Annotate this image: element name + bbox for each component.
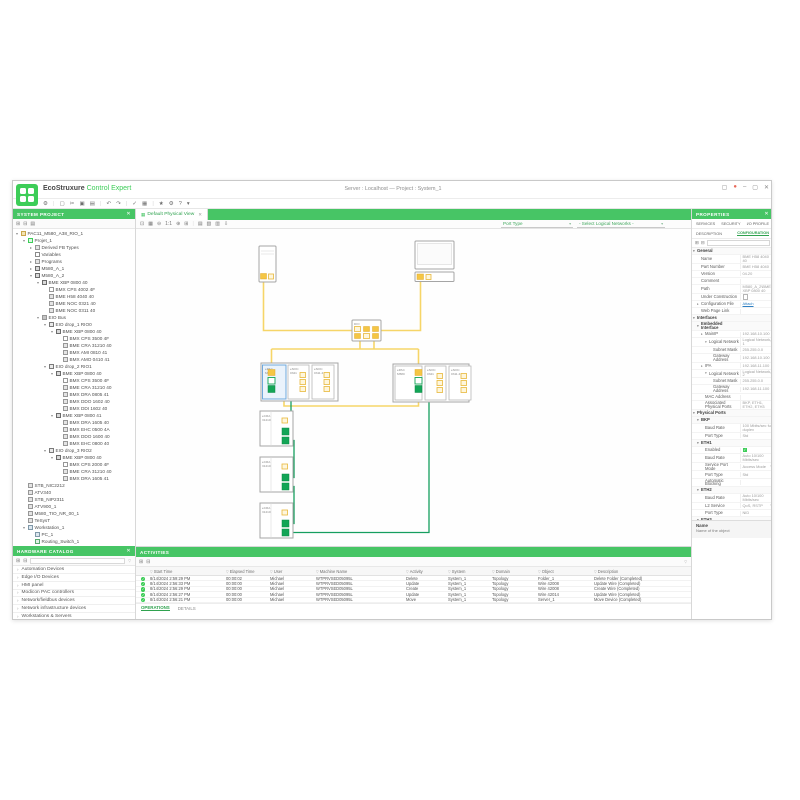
property-row[interactable]: Service Port Mode Access Mode	[692, 463, 772, 472]
col-description[interactable]: ▽Description	[592, 569, 691, 574]
close-icon[interactable]: ✕	[126, 211, 131, 217]
property-value[interactable]: BME H58 4040 40	[740, 255, 772, 263]
noc-port[interactable]	[324, 380, 330, 385]
separator[interactable]: |	[53, 199, 54, 209]
tree-item[interactable]: STB_NIP2311	[13, 496, 135, 503]
tree-item[interactable]: Variables	[13, 251, 135, 258]
property-value[interactable]: Attach	[740, 302, 772, 307]
property-label: Port Type	[705, 511, 740, 515]
catalog-category[interactable]: › Automation Devices	[13, 566, 135, 574]
tree-item-icon	[42, 315, 47, 320]
tab-security[interactable]: SECURITY	[721, 222, 740, 226]
property-value[interactable]	[740, 309, 772, 314]
noc-port[interactable]	[300, 380, 306, 385]
snapshot[interactable]: ▧	[207, 221, 212, 227]
property-row[interactable]: ▾ Logical Network Logical Network 1	[692, 338, 772, 347]
print[interactable]: ▥	[215, 221, 220, 227]
filter-funnel-icon[interactable]: ▽	[594, 570, 597, 574]
tree-item-icon	[49, 448, 54, 453]
tree-item-icon	[42, 280, 47, 285]
cell-user: Michael	[268, 586, 314, 591]
tree-item[interactable]: BME NOC 0311 40	[13, 307, 135, 314]
tree-item[interactable]: STB_NIC2212	[13, 482, 135, 489]
cra-port-green[interactable]	[282, 437, 289, 444]
tree-item-icon	[56, 455, 61, 460]
property-value[interactable]: Auto 10/100 Mbits/sec	[740, 454, 772, 462]
property-row[interactable]: ▾ ETH3	[692, 517, 772, 520]
separator[interactable]: |	[100, 199, 101, 209]
port-type-dropdown[interactable]: Port Type ▾	[501, 221, 573, 228]
switch-port[interactable]	[364, 334, 370, 339]
switch-port[interactable]	[364, 327, 370, 332]
property-value[interactable]: 192.168.11.100	[740, 363, 772, 368]
tree-item[interactable]: Routing_Switch_1	[13, 538, 135, 545]
chevron-right-icon[interactable]: ›	[17, 590, 19, 595]
property-value[interactable]	[740, 249, 772, 254]
switch-device[interactable]: DIO	[352, 320, 381, 341]
catalog-category-label: HMI panel	[22, 583, 44, 588]
property-row[interactable]: Port Type Std	[692, 433, 772, 440]
tree-item[interactable]: ▸ Programs	[13, 258, 135, 265]
tree-item[interactable]: ATV340	[13, 489, 135, 496]
tree-item[interactable]: ▾ Workstation_1	[13, 524, 135, 531]
server-port-free[interactable]	[269, 274, 274, 279]
options[interactable]: ⚙	[169, 199, 174, 209]
sync-selection[interactable]: ▤	[30, 221, 35, 227]
property-row[interactable]: Under Construction	[692, 294, 772, 301]
undo[interactable]: ↶	[107, 199, 112, 209]
tree-item[interactable]: ▾ EIO Bus	[13, 314, 135, 321]
noc-port[interactable]	[461, 388, 467, 393]
tree-item[interactable]: ▾ BME XBP 0800 40	[13, 279, 135, 286]
noc-port[interactable]	[461, 374, 467, 379]
noc-port[interactable]	[324, 373, 330, 378]
tree-item[interactable]: BMX CPS 3500 4F	[13, 377, 135, 384]
noc-port[interactable]	[324, 387, 330, 392]
separator[interactable]: |	[152, 199, 153, 209]
cpu-port-yellow[interactable]	[415, 370, 422, 376]
property-value[interactable]	[740, 418, 772, 423]
property-value[interactable]: 192.168.11.100	[740, 387, 772, 392]
tree-item[interactable]: BMX AMI 0810 41	[13, 349, 135, 356]
tree-item[interactable]: ▾ BME XBP 0800 41	[13, 412, 135, 419]
switch-port[interactable]	[373, 334, 379, 339]
col-domain[interactable]: ▽Domain	[490, 569, 536, 574]
property-row[interactable]: ▾ Physical Ports	[692, 410, 772, 417]
cra-port-yellow-free[interactable]	[282, 464, 288, 469]
chevron-right-icon[interactable]: ›	[17, 606, 19, 611]
property-value[interactable]: M580_A_2\BME XBP 0800 40	[740, 285, 772, 293]
property-label: Enabled	[705, 448, 740, 452]
topology-canvas[interactable]: DIO ePAC M580	[136, 229, 691, 546]
cell-system: System_1	[446, 592, 490, 597]
paste[interactable]: ▤	[90, 199, 95, 209]
property-value[interactable]	[740, 440, 772, 445]
settings[interactable]: ⚙	[43, 199, 48, 209]
zoom-level[interactable]: 1:1	[165, 221, 172, 227]
collapse-all[interactable]: ⊟	[23, 221, 27, 227]
tree-item[interactable]: ▾ EIO drop_2 RIO1	[13, 363, 135, 370]
noc-port[interactable]	[437, 374, 443, 379]
export-log[interactable]: ⊞	[139, 559, 143, 565]
cut[interactable]: ✂	[70, 199, 75, 209]
property-value[interactable]: Logical Network 1	[740, 338, 772, 346]
catalog-filter-input[interactable]	[30, 558, 125, 564]
property-row[interactable]: Web Page Link	[692, 308, 772, 315]
property-value[interactable]: 192.168.10.100	[740, 332, 772, 337]
tree-item[interactable]: ▾ BME XBP 0800 40	[13, 454, 135, 461]
tree-item-icon	[63, 343, 68, 348]
expand-all[interactable]: ⊞	[16, 221, 20, 227]
property-value[interactable]	[740, 395, 772, 400]
copy[interactable]: ▣	[79, 199, 84, 209]
col-object[interactable]: ▽Object	[536, 569, 592, 574]
favorites[interactable]: ★	[159, 199, 164, 209]
noc-port[interactable]	[437, 388, 443, 393]
col-start-time[interactable]: ▽Start Time	[148, 569, 224, 574]
tree-item[interactable]: BMX EHC 0800 40	[13, 440, 135, 447]
svg-text:31210: 31210	[262, 510, 271, 514]
tree-item[interactable]: PC_1	[13, 531, 135, 538]
separator[interactable]: |	[126, 199, 127, 209]
property-value[interactable]: QoS, RSTP	[740, 503, 772, 508]
property-row[interactable]: Baud Rate 100 Mbits/sec full duplex	[692, 424, 772, 433]
catalog-category[interactable]: › Network infrastructure devices	[13, 605, 135, 613]
switch-port[interactable]	[355, 334, 361, 339]
property-value[interactable]	[740, 324, 772, 329]
tree-item[interactable]: ATV900_1	[13, 503, 135, 510]
server-device[interactable]	[259, 246, 276, 282]
cra-drop-2[interactable]: eCRA 31210	[260, 457, 293, 492]
col-user[interactable]: ▽User	[268, 569, 314, 574]
cpu-port-green-free[interactable]	[268, 378, 275, 385]
catalog-category[interactable]: › Edge I/O Devices	[13, 574, 135, 582]
tree-item-icon	[28, 511, 33, 516]
filter-funnel-icon[interactable]: ▽	[684, 560, 687, 564]
cra-port-green[interactable]	[282, 474, 289, 481]
fit-view[interactable]: ⊡	[140, 221, 144, 227]
left-rack-device[interactable]: ePAC M580 eNOC 0321 eNOC 0311.4	[261, 363, 338, 401]
tab-services[interactable]: SERVICES	[696, 222, 715, 226]
noc-port[interactable]	[300, 373, 306, 378]
property-row[interactable]: ▸ IPA 192.168.11.100	[692, 363, 772, 370]
export-view[interactable]: ▤	[198, 221, 203, 227]
tree-item-label: BME XBP 0800 40	[63, 329, 102, 334]
filter-funnel-icon[interactable]: ▽	[226, 570, 229, 574]
property-row[interactable]: ▾ ETH2	[692, 487, 772, 494]
zoom-out[interactable]: ⊖	[157, 221, 161, 227]
chevron-down-icon: ▾	[661, 221, 663, 226]
property-row[interactable]: Comment	[692, 278, 772, 285]
workstation-port-free[interactable]	[426, 275, 431, 280]
workstation-port[interactable]	[417, 274, 424, 280]
filter-funnel-icon[interactable]: ▽	[448, 570, 451, 574]
tree-item[interactable]: BMX CPS 3500 4F	[13, 335, 135, 342]
tree-item-icon	[63, 399, 68, 404]
account-button[interactable]: ●	[733, 184, 737, 191]
tree-item-label: BMX DDO 1600 40	[70, 434, 110, 439]
property-row[interactable]: Subnet Mask 255.255.0.0	[692, 347, 772, 354]
tree-item[interactable]: BMX DRA 0805 41	[13, 391, 135, 398]
property-value[interactable]: Auto 10/100 Mbits/sec	[740, 494, 772, 502]
tree-item[interactable]: BMX DRA 1605 40	[13, 419, 135, 426]
tree-item[interactable]: BME CRA 31210 40	[13, 384, 135, 391]
tree-item[interactable]: BMX DDI 1602 40	[13, 405, 135, 412]
catalog-category[interactable]: › Workstations & Servers	[13, 613, 135, 620]
catalog-category[interactable]: › Modicon PAC controllers	[13, 590, 135, 598]
col-system[interactable]: ▽System	[446, 569, 490, 574]
right-rack-device[interactable]: ePAC M580 eNOC 0321 eNOC 0311.4	[393, 364, 471, 402]
tab-close-icon[interactable]: ✕	[198, 212, 202, 218]
property-value[interactable]: NID	[740, 511, 772, 516]
expand-all[interactable]: ⊞	[16, 558, 20, 564]
tree-item[interactable]: BMX DDO 1600 40	[13, 433, 135, 440]
minimize-button[interactable]: –	[743, 184, 746, 191]
chevron-right-icon[interactable]: ›	[17, 614, 19, 619]
property-row[interactable]: ▸ MainIP 192.168.10.100	[692, 331, 772, 338]
property-value[interactable]: Std	[740, 472, 772, 477]
activity-row[interactable]: ✓ 8/14/2024 2:56:21 PM 00:00:00 Michael …	[136, 598, 691, 603]
cra-port-yellow-free[interactable]	[282, 510, 288, 515]
filter-funnel-icon[interactable]: ▽	[270, 570, 273, 574]
property-row[interactable]: ▾ ETH1	[692, 440, 772, 447]
property-label: ETH2	[701, 488, 740, 492]
logical-networks-dropdown[interactable]: - Select Logical Networks - ▾	[577, 221, 665, 228]
tree-item[interactable]: BMX EHC 0500 4A	[13, 426, 135, 433]
tree-item-icon	[63, 392, 68, 397]
catalog-toolbar: ⊞ ⊟ ▽	[13, 556, 135, 566]
tree-item-label: BMX DDI 1602 40	[70, 406, 108, 411]
tree-item-icon	[63, 462, 68, 467]
tab-io-profile[interactable]: I/O PROFILE	[747, 222, 769, 226]
tree-item-icon	[28, 238, 33, 243]
tree-item[interactable]: BME H58 4040 40	[13, 293, 135, 300]
property-row[interactable]: Name BME H58 4040 40	[692, 255, 772, 264]
property-help-box: Name Name of the object	[692, 520, 772, 538]
chevron-right-icon[interactable]: ›	[17, 583, 19, 588]
catalog-category[interactable]: › Network/fieldbus devices	[13, 597, 135, 605]
zoom-area[interactable]: ⊞	[184, 221, 188, 227]
property-value[interactable]: 04.20	[740, 271, 772, 276]
property-label: Configuration File	[701, 302, 740, 306]
noc-port[interactable]	[300, 387, 306, 392]
property-value[interactable]: Access Mode	[740, 464, 772, 469]
tree-item[interactable]: ▸ Derived FB Types	[13, 244, 135, 251]
property-value[interactable]	[740, 279, 772, 284]
tree-item[interactable]: BMX AMO 0410 41	[13, 356, 135, 363]
property-row[interactable]: ▸ Configuration File Attach	[692, 301, 772, 308]
property-value[interactable]	[740, 480, 772, 485]
filter-funnel-icon[interactable]: ▽	[492, 570, 495, 574]
chevron-right-icon[interactable]: ›	[17, 567, 19, 572]
tree-item[interactable]: TeSysT	[13, 517, 135, 524]
refresh-log[interactable]: ⊟	[146, 559, 150, 565]
catalog-category[interactable]: › HMI panel	[13, 582, 135, 590]
close-icon[interactable]: ✕	[126, 548, 131, 554]
property-row[interactable]: Associated Physical Ports BKP, ETH1, ETH…	[692, 401, 772, 410]
property-value[interactable]	[740, 488, 772, 493]
cpu-port-yellow[interactable]	[268, 370, 275, 376]
property-row[interactable]: MAC Address	[692, 394, 772, 401]
filter-funnel-icon[interactable]: ▽	[406, 570, 409, 574]
property-value[interactable]: 255.255.0.0	[740, 347, 772, 352]
property-row[interactable]: L2 Service QoS, RSTP	[692, 503, 772, 510]
tree-item[interactable]: ▸ M580_A_1	[13, 265, 135, 272]
cell-machine: WTPRVSED05095L	[314, 581, 404, 586]
property-value[interactable]: 192.168.10.100	[740, 355, 772, 360]
view-toolbar: ⊡ ▦ ⊖ 1:1 ⊕ ⊞ | ▤ ▧ ▥ ⇩ Port Type ▾ - Se…	[136, 220, 691, 229]
layout-button[interactable]: ▢	[722, 184, 728, 191]
zoom-in[interactable]: ⊕	[176, 221, 180, 227]
tab-configuration[interactable]: CONFIGURATION	[737, 231, 769, 236]
filter-funnel-icon[interactable]: ▽	[150, 570, 153, 574]
tab-default-physical-view[interactable]: ▦ Default Physical View ✕	[136, 209, 208, 220]
cra-port-green[interactable]	[282, 529, 289, 536]
tree-item-icon	[35, 273, 40, 278]
cpu-port-green[interactable]	[415, 386, 422, 393]
col-elapsed-time[interactable]: ▽Elapsed Time	[224, 569, 268, 574]
close-button[interactable]: ✕	[764, 184, 769, 191]
expand-all[interactable]: ⊞	[695, 240, 699, 246]
chevron-right-icon[interactable]: ›	[17, 575, 19, 580]
cra-port-green[interactable]	[282, 520, 289, 527]
property-label: ETH3	[701, 518, 740, 520]
property-row[interactable]: Gateway Address 192.168.10.100	[692, 354, 772, 363]
property-label: Subnet Mask	[713, 379, 740, 383]
property-value[interactable]	[740, 448, 772, 453]
tree-item-icon	[35, 532, 40, 537]
validate[interactable]: ✓	[132, 199, 137, 209]
tree-item[interactable]: ▾ BME XBP 0800 40	[13, 328, 135, 335]
tree-item[interactable]: BMX CPS 2000 4F	[13, 461, 135, 468]
toggle-grid[interactable]: ▦	[148, 221, 153, 227]
property-label: Associated Physical Ports	[705, 401, 740, 409]
filter-funnel-icon[interactable]: ▽	[128, 559, 131, 563]
maximize-button[interactable]: ▢	[752, 184, 758, 191]
tree-item[interactable]: ▾ M580_A_2	[13, 272, 135, 279]
property-row[interactable]: ▾ General	[692, 248, 772, 255]
cra-port-yellow-free[interactable]	[282, 418, 288, 423]
wire-rio-ring-4[interactable]	[289, 390, 429, 533]
tree-item[interactable]: BME CRA 31210 40	[13, 342, 135, 349]
server-port[interactable]	[261, 274, 267, 280]
tree-item-icon	[63, 434, 68, 439]
property-row[interactable]: Part Number BME H58 4040	[692, 264, 772, 271]
help[interactable]: ?	[179, 199, 182, 209]
status-ok-icon: ✓	[141, 598, 145, 602]
property-row[interactable]: ▾ Logical Network Logical Network 2	[692, 370, 772, 379]
tree-item[interactable]: BME NOC 0321 40	[13, 300, 135, 307]
tab-operations[interactable]: OPERATIONS	[141, 605, 170, 611]
tree-item[interactable]: BMX DRA 1605 41	[13, 475, 135, 482]
chevron-right-icon[interactable]: ›	[17, 598, 19, 603]
property-row[interactable]: Version 04.20	[692, 271, 772, 278]
property-row[interactable]: Path M580_A_2\BME XBP 0800 40	[692, 285, 772, 294]
cra-port-green[interactable]	[282, 428, 289, 435]
tree-item[interactable]: BME CRA 31210 40	[13, 468, 135, 475]
property-label: Baud Rate	[705, 426, 740, 430]
property-label: Logical Network	[709, 372, 740, 376]
tree-item[interactable]: ▾ BME XBP 0800 40	[13, 370, 135, 377]
tree-item[interactable]: BMX DDO 1602 40	[13, 398, 135, 405]
col-activity[interactable]: ▽Activity	[404, 569, 446, 574]
property-row[interactable]: Gateway Address 192.168.11.100	[692, 385, 772, 394]
properties-search-input[interactable]	[707, 240, 770, 246]
property-value[interactable]	[740, 316, 772, 321]
noc-port[interactable]	[437, 381, 443, 386]
more[interactable]: ▾	[187, 199, 190, 209]
property-row[interactable]: Subnet Mask 255.255.0.0	[692, 378, 772, 385]
redo[interactable]: ↷	[116, 199, 121, 209]
cell-system: System_1	[446, 586, 490, 591]
property-value[interactable]: 255.255.0.0	[740, 379, 772, 384]
cpu-port-green-free[interactable]	[415, 378, 422, 385]
property-value[interactable]: BME H58 4040	[740, 264, 772, 269]
property-value[interactable]: 100 Mbits/sec full duplex	[740, 424, 772, 432]
filter-funnel-icon[interactable]: ▽	[316, 570, 319, 574]
filter-funnel-icon[interactable]: ▽	[538, 570, 541, 574]
wire-pc-to-switch[interactable]	[381, 280, 421, 331]
tree-item[interactable]: BMX CPS 4002 4F	[13, 286, 135, 293]
tree-item-label: BMX CPS 2000 4F	[70, 462, 110, 467]
property-value[interactable]: BKP, ETH1, ETH2, ETH3	[740, 401, 772, 409]
property-value[interactable]	[740, 518, 772, 520]
tree-item[interactable]: ▾ PAC11_M580_A38_RIO_1	[13, 230, 135, 237]
property-row[interactable]: Automatic Blocking	[692, 479, 772, 488]
property-row[interactable]: Baud Rate Auto 10/100 Mbits/sec	[692, 454, 772, 463]
switch-port[interactable]	[373, 327, 379, 332]
property-value[interactable]	[740, 410, 772, 415]
wire-server-to-switch[interactable]	[264, 279, 353, 331]
cra-drop-3[interactable]: eCRA 31210	[260, 503, 293, 538]
download[interactable]: ⇩	[224, 221, 228, 227]
property-value[interactable]: Logical Network 2	[740, 370, 772, 378]
tree-item-label: BME XBP 0800 41	[63, 413, 102, 418]
property-value[interactable]: Std	[740, 433, 772, 438]
build[interactable]: ▦	[142, 199, 147, 209]
tree-item-label: BMX DRA 1605 40	[70, 420, 109, 425]
view-icon: ▦	[141, 212, 145, 218]
property-row[interactable]: Enabled	[692, 447, 772, 454]
cra-port-green[interactable]	[282, 483, 289, 490]
cpu-port-green[interactable]	[268, 386, 275, 393]
property-row[interactable]: Port Type NID	[692, 510, 772, 517]
tab-description[interactable]: DESCRIPTION	[696, 232, 722, 236]
close-icon[interactable]: ✕	[764, 211, 769, 217]
property-row[interactable]: ▾ Embedded Interface	[692, 322, 772, 331]
tree-item[interactable]: ▾ Projet_1	[13, 237, 135, 244]
workstation-device[interactable]	[415, 241, 454, 282]
chevron-down-icon: ▾	[569, 221, 571, 226]
collapse-all[interactable]: ⊟	[701, 240, 705, 246]
property-row[interactable]: Baud Rate Auto 10/100 Mbits/sec	[692, 494, 772, 503]
tree-item-label: M580_A_2	[42, 273, 65, 278]
new-project[interactable]: ▢	[59, 199, 64, 209]
tree-item[interactable]: ▾ EIO drop_1 RIO0	[13, 321, 135, 328]
tree-item[interactable]: M580_TIO_NR_00_1	[13, 510, 135, 517]
property-row[interactable]: ▾ BKP	[692, 417, 772, 424]
noc-port[interactable]	[461, 381, 467, 386]
switch-port[interactable]	[355, 327, 361, 332]
property-row[interactable]: Port Type Std	[692, 471, 772, 478]
collapse-all[interactable]: ⊟	[23, 558, 27, 564]
col-machine-name[interactable]: ▽Machine Name	[314, 569, 404, 574]
cra-drop-1[interactable]: eCRA 31210	[260, 411, 293, 446]
tree-item[interactable]: ▾ EIO drop_3 RIO2	[13, 447, 135, 454]
tab-details[interactable]: DETAILS	[178, 606, 196, 611]
brand-product: Control Expert	[87, 185, 132, 192]
property-value[interactable]	[740, 294, 772, 300]
